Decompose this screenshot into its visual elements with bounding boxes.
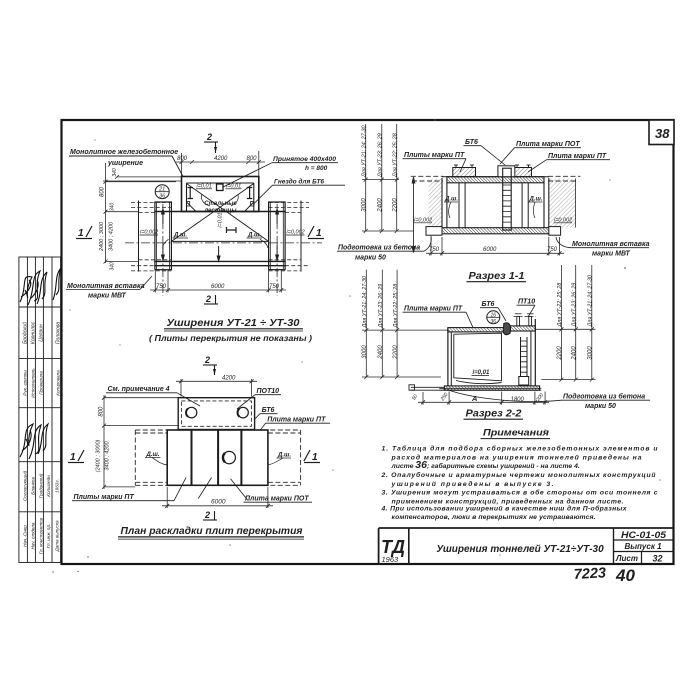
svg-text:340: 340 <box>112 168 118 177</box>
svg-text:марки МВТ: марки МВТ <box>592 251 631 258</box>
svg-text:i=0,01: i=0,01 <box>473 370 491 376</box>
svg-text:Разрез 1-1: Разрез 1-1 <box>469 270 525 282</box>
svg-text:расход материалов на уширен: расход материалов на уширения тоннелей п… <box>391 453 642 461</box>
svg-text:2400 ; 3000: 2400 ; 3000 <box>99 221 105 252</box>
svg-text:Плиты марки ПТ: Плиты марки ПТ <box>74 494 135 501</box>
svg-text:2200: 2200 <box>393 345 399 360</box>
svg-text:i=0,01: i=0,01 <box>218 212 224 227</box>
svg-text:Цаприн: Цаприн <box>39 324 45 342</box>
svg-text:1: 1 <box>78 228 84 239</box>
svg-text:21: 21 <box>158 187 165 193</box>
svg-text:3000: 3000 <box>588 346 594 360</box>
svg-text:Лист: Лист <box>615 554 638 563</box>
svg-text:1: 1 <box>70 452 76 463</box>
svg-text:4200: 4200 <box>214 156 228 162</box>
svg-text:750: 750 <box>269 284 280 290</box>
svg-text:Копшгейн: Копшгейн <box>45 475 51 497</box>
svg-text:Нач. отдела: Нач. отдела <box>31 522 36 549</box>
svg-text:Градинский: Градинский <box>38 473 44 498</box>
svg-text:Монолитная вставка: Монолитная вставка <box>572 241 650 248</box>
svg-text:Гнездо для БТ6: Гнездо для БТ6 <box>274 178 324 186</box>
svg-text:3000: 3000 <box>362 345 368 359</box>
svg-text:( Плиты перекрытия не показ: ( Плиты перекрытия не показаны ) <box>149 334 312 343</box>
svg-text:40: 40 <box>615 566 635 585</box>
svg-text:Проверила: Проверила <box>39 371 44 395</box>
svg-text:Подготовка из бетона: Подготовка из бетона <box>563 393 645 401</box>
svg-text:Гл. инж. пр.: Гл. инж. пр. <box>46 524 51 549</box>
svg-text:800: 800 <box>99 406 105 417</box>
svg-text:36: 36 <box>491 319 497 325</box>
svg-text:Подготовка из бетона: Подготовка из бетона <box>338 244 420 252</box>
svg-text:Полякова: Полякова <box>56 322 62 344</box>
svg-text:Копировала: Копировала <box>56 370 61 396</box>
svg-text:Д.ш.: Д.ш. <box>146 452 160 458</box>
svg-text:Нач.-Снер: Нач.-Снер <box>23 525 28 547</box>
svg-text:6000: 6000 <box>483 247 497 253</box>
svg-text:Для УТ-22; 25; 28: Для УТ-22; 25; 28 <box>393 284 399 329</box>
svg-text:Уширения тоннелей УТ-21÷УТ-3: Уширения тоннелей УТ-21÷УТ-30 <box>436 544 604 555</box>
svg-text:Монолитное железобетонное: Монолитное железобетонное <box>70 148 178 156</box>
svg-text:Для УТ-22; 25; 28: Для УТ-22; 25; 28 <box>557 283 563 328</box>
svg-text:Согласующий: Согласующий <box>22 470 28 501</box>
svg-text:Исполнитель: Исполнитель <box>31 368 36 398</box>
svg-text:800: 800 <box>100 186 106 197</box>
svg-text:Плита марки ПОТ: Плита марки ПОТ <box>245 496 309 503</box>
svg-text:340: 340 <box>110 203 116 212</box>
svg-text:Для УТ-23; 26; 29: Для УТ-23; 26; 29 <box>572 283 578 328</box>
svg-text:Д.ш.: Д.ш. <box>173 233 187 239</box>
svg-text:Уширения УТ-21 ÷ УТ-30: Уширения УТ-21 ÷ УТ-30 <box>167 317 300 329</box>
svg-text:Бланков: Бланков <box>31 477 36 495</box>
svg-text:340: 340 <box>110 262 116 271</box>
svg-text:Плита марки ПТ: Плита марки ПТ <box>404 306 463 313</box>
svg-text:Для УТ-22; 25; 28: Для УТ-22; 25; 28 <box>393 133 399 178</box>
svg-text:2: 2 <box>206 132 212 142</box>
svg-text:уширение: уширение <box>107 160 143 167</box>
svg-text:4. При использовании уширени: 4. При использовании уширений в качестве… <box>381 505 628 513</box>
svg-text:План раскладки плит перекры: План раскладки плит перекрытия <box>121 525 303 537</box>
svg-text:Выпуск 1: Выпуск 1 <box>624 542 662 551</box>
svg-text:применением конструкций, при: применением конструкций, приведенных на … <box>392 497 624 505</box>
svg-text:НС-01-05: НС-01-05 <box>621 530 667 540</box>
svg-text:ПТ10: ПТ10 <box>518 299 535 306</box>
svg-text:(2400 ; 3000): (2400 ; 3000) <box>96 439 102 472</box>
svg-text:1. Таблица для подбора сбор: 1. Таблица для подбора сборных железобет… <box>382 445 659 453</box>
svg-text:1: 1 <box>316 228 322 239</box>
svg-text:800: 800 <box>177 156 188 162</box>
svg-text:марки 50: марки 50 <box>585 403 616 410</box>
svg-text:БТ6: БТ6 <box>465 139 478 146</box>
svg-text:2400: 2400 <box>572 346 578 361</box>
svg-text:Для УТ-23; 26; 29: Для УТ-23; 26; 29 <box>378 284 384 329</box>
svg-text:Бродский: Бродский <box>22 322 29 344</box>
svg-text:2: 2 <box>205 294 211 304</box>
svg-text:Д.ш.: Д.ш. <box>444 197 458 203</box>
svg-text:750: 750 <box>429 247 440 253</box>
svg-text:марки МВТ: марки МВТ <box>88 293 127 300</box>
svg-text:6000: 6000 <box>211 284 225 290</box>
svg-text:4200: 4200 <box>222 376 236 382</box>
svg-text:Дата выпуска: Дата выпуска <box>55 520 60 552</box>
svg-text:Монолитная вставка: Монолитная вставка <box>67 283 145 290</box>
svg-text:2: 2 <box>204 355 210 365</box>
svg-text:Гл. конструктор: Гл. конструктор <box>39 517 44 554</box>
svg-text:Плиты марки ПТ: Плиты марки ПТ <box>404 152 465 159</box>
svg-text:Для УТ-21; 24; 27-30: Для УТ-21; 24; 27-30 <box>362 276 368 329</box>
svg-text:3400 ; 4200: 3400 ; 4200 <box>109 221 115 251</box>
svg-text:Для УТ-23; 26; 29: Для УТ-23; 26; 29 <box>378 133 384 178</box>
svg-text:Д.ш.: Д.ш. <box>247 233 261 239</box>
svg-text:3400 ; 4200: 3400 ; 4200 <box>105 441 111 471</box>
svg-text:1963: 1963 <box>382 555 400 564</box>
svg-text:3. Уширения могут устраивать: 3. Уширения могут устраиваться в обе сто… <box>382 489 658 497</box>
svg-text:2: 2 <box>204 510 210 520</box>
svg-text:Д.ш.: Д.ш. <box>277 453 291 459</box>
svg-text:Плита марки ПТ: Плита марки ПТ <box>548 153 607 160</box>
svg-text:Корнилос: Корнилос <box>31 321 37 344</box>
svg-text:2. Опалубочные и арматурные: 2. Опалубочные и арматурные чертежи моно… <box>381 471 657 479</box>
svg-text:2400: 2400 <box>378 345 384 360</box>
svg-text:БТ6: БТ6 <box>262 407 275 414</box>
svg-text:16: 16 <box>491 312 497 318</box>
svg-text:750: 750 <box>156 284 167 290</box>
svg-text:марки 50: марки 50 <box>355 255 386 262</box>
svg-text:ТД: ТД <box>381 537 405 557</box>
svg-text:2400: 2400 <box>378 198 384 213</box>
svg-text:компенсаторов, люки в перек: компенсаторов, люки в перекрытиях не уст… <box>392 514 596 521</box>
svg-text:32: 32 <box>652 554 662 564</box>
svg-text:уширений приведены в выпуск: уширений приведены в выпуске 3. <box>391 480 554 488</box>
svg-text:А: А <box>471 394 477 403</box>
svg-text:Д.ш.: Д.ш. <box>529 197 543 203</box>
svg-text:Рук. группы: Рук. группы <box>23 370 28 396</box>
svg-text:7223: 7223 <box>573 565 606 583</box>
svg-text:38: 38 <box>655 126 670 141</box>
svg-text:1963г.: 1963г. <box>55 479 60 493</box>
svg-text:Плита марки ПТ: Плита марки ПТ <box>267 417 326 424</box>
svg-text:3000: 3000 <box>362 198 368 212</box>
svg-text:БТ6: БТ6 <box>482 301 495 308</box>
svg-text:Примечания: Примечания <box>483 428 549 439</box>
svg-text:1: 1 <box>312 452 318 463</box>
svg-text:Для УТ-21; 24; 27-30: Для УТ-21; 24; 27-30 <box>588 275 594 328</box>
svg-text:2200: 2200 <box>557 346 563 361</box>
svg-text:h = 800: h = 800 <box>305 165 328 172</box>
svg-text:Плита марки ПОТ: Плита марки ПОТ <box>516 141 580 148</box>
svg-text:1800: 1800 <box>511 397 525 403</box>
svg-text:2200: 2200 <box>393 198 399 213</box>
svg-text:800: 800 <box>247 156 258 162</box>
svg-text:36: 36 <box>159 194 166 200</box>
svg-text:Принятое 400х400: Принятое 400х400 <box>273 156 336 163</box>
svg-text:Для УТ-21; 24; 27-30: Для УТ-21; 24; 27-30 <box>362 125 368 178</box>
svg-text:См. примечание 4: См. примечание 4 <box>108 386 170 393</box>
svg-text:Разрез 2-2: Разрез 2-2 <box>466 408 522 420</box>
svg-text:ПОТ10: ПОТ10 <box>257 388 280 395</box>
svg-text:750: 750 <box>547 247 558 253</box>
svg-text:6000: 6000 <box>211 499 226 506</box>
